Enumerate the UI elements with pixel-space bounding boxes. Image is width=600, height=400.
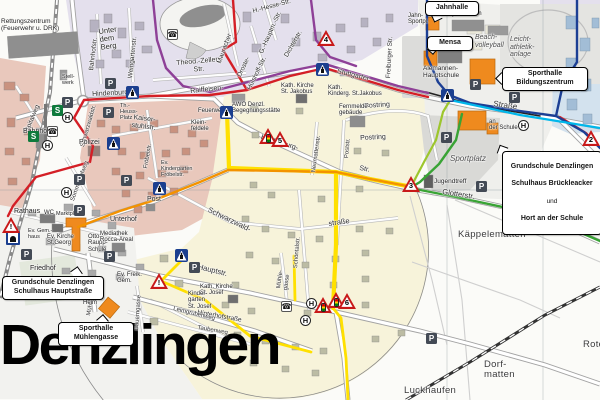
parking-icon: P [470,79,481,90]
poi-jugendtreff: Jugendtreff [434,178,466,185]
parking-icon: P [189,262,200,273]
poi-post: Post [147,196,161,204]
callout-line: Schulhaus Brückleacker [506,180,598,189]
pedestrian-crossing-icon [107,137,120,150]
parking-icon: P [103,107,114,118]
poi-friedhof: Friedhof [30,265,56,273]
poi-awo: AWO Denzl. Begegnungsstätte [232,102,280,115]
poi-kath-jakobus: Kath. Kirche St. Jakobus [281,83,314,96]
poi-rettungszentrum: Rettungszentrum (Feuerwehr u. DRK) [1,18,59,32]
bus-stop-icon: H [61,187,72,198]
warning-triangle-5: 5 [271,131,289,147]
district-luckhaufen: Luckhaufen [404,386,456,396]
warning-triangle-3: 3 [402,176,420,192]
parking-icon: P [104,251,115,262]
parking-icon: P [441,132,452,143]
parking-icon: P [509,92,520,103]
phone-icon: ☎ [167,29,178,40]
parking-icon: P [62,97,73,108]
poi-polizei: Polizei [79,139,100,147]
phone-icon: ☎ [281,301,292,312]
pedestrian-crossing-icon [153,182,166,195]
callout-line: Grundschule Denzlingen [506,163,598,172]
map-canvas[interactable]: Denzlingen Bahnhofstr. Weingartenstr. Th… [0,0,600,400]
district-dorfmatten: Dorf- matten [484,360,515,381]
bus-stop-icon: H [62,112,73,123]
poi-fernmelde: Fernmelde- gebäude [339,104,370,117]
parking-icon: P [121,175,132,186]
pedestrian-crossing-icon [220,106,233,119]
callout-mensa: Mensa [427,36,473,51]
poi-ev-freik: Ev. Freik. Gem. [117,272,142,285]
poi-kleinfeldele: Klein- feldele [191,120,209,133]
pedestrian-crossing-icon [175,249,188,262]
poi-heim: Heim [83,300,97,306]
poi-kiga-josef: Kinder- garten St. Josef [188,291,211,310]
callout-sporthalle-bildungszentrum: Sporthalle Bildungszentrum [502,67,588,91]
poi-alemannen: Alemannen- Hauptschule [423,65,459,79]
bus-stop-icon: H [518,120,529,131]
poi-unterhof: Unterhof [110,216,137,224]
poi-ev-kirche: Ev. Kirche St.Georg [47,234,74,247]
parking-icon: P [426,333,437,344]
poi-wc: WC [44,210,54,216]
pedestrian-crossing-icon [316,63,329,76]
phone-icon: ☎ [47,126,58,137]
sbahn-icon: S [52,105,63,116]
pedestrian-crossing-icon [126,86,139,99]
street-hindenburg-se-str: Str. [359,165,371,174]
warning-triangle-exclamation: ! [150,273,168,289]
warning-triangle-2: 2 [582,130,600,146]
poi-hort-building: an der Schule [489,119,518,132]
warning-triangle-exclamation: ! [2,217,20,233]
parking-icon: P [74,174,85,185]
parking-icon: P [476,181,487,192]
bus-stop-icon: H [300,315,311,326]
poi-sportplatz: Sportplatz [450,155,486,164]
poi-stellwerk: Stell- werk [62,75,75,87]
poi-beachvolleyball: Beach- volleyball [475,34,504,49]
street-postring-s: Postring [360,134,386,143]
warning-triangle-4: 4 [317,30,335,46]
poi-th-heuss-platz: Th.- Heuss- Platz [120,104,137,122]
callout-jahnhalle: Jahnhalle [425,1,479,16]
parking-icon: P [74,205,85,216]
district-rote: Rote- [583,340,600,350]
callout-grundschule-hauptstrasse: Grundschule Denzlingen Schulhaus Hauptst… [2,276,104,300]
callout-grundschule-brueckleacker: Grundschule Denzlingen Schulhaus Brückle… [502,151,600,235]
callout-sporthalle-muehlengasse: Sporthalle Mühlengasse [58,322,134,346]
poi-mediathek: Mediathek Rocca-Areal [100,231,133,244]
district-unter-dem-berg: Unter dem Berg [98,25,120,52]
warning-triangle-6: 6 [338,293,356,309]
sbahn-icon: S [28,131,39,142]
callout-line: und [506,198,598,206]
parking-icon: P [21,249,32,260]
bus-stop-icon: H [42,140,53,151]
parking-icon: P [105,78,116,89]
poi-ev-kindergarten: Ev. Kindergarten Fröbelstr. [161,161,193,179]
poi-kiga-jakobus: Kath. Kinderg. St.Jakobus [328,85,382,98]
underpass-icon [6,231,20,245]
poi-leichtathletik: Leicht- athletik- anlage [510,36,535,59]
poi-rathaus: Rathaus [14,208,40,216]
callout-line: Hort an der Schule [506,215,598,224]
pedestrian-crossing-icon [441,89,454,102]
